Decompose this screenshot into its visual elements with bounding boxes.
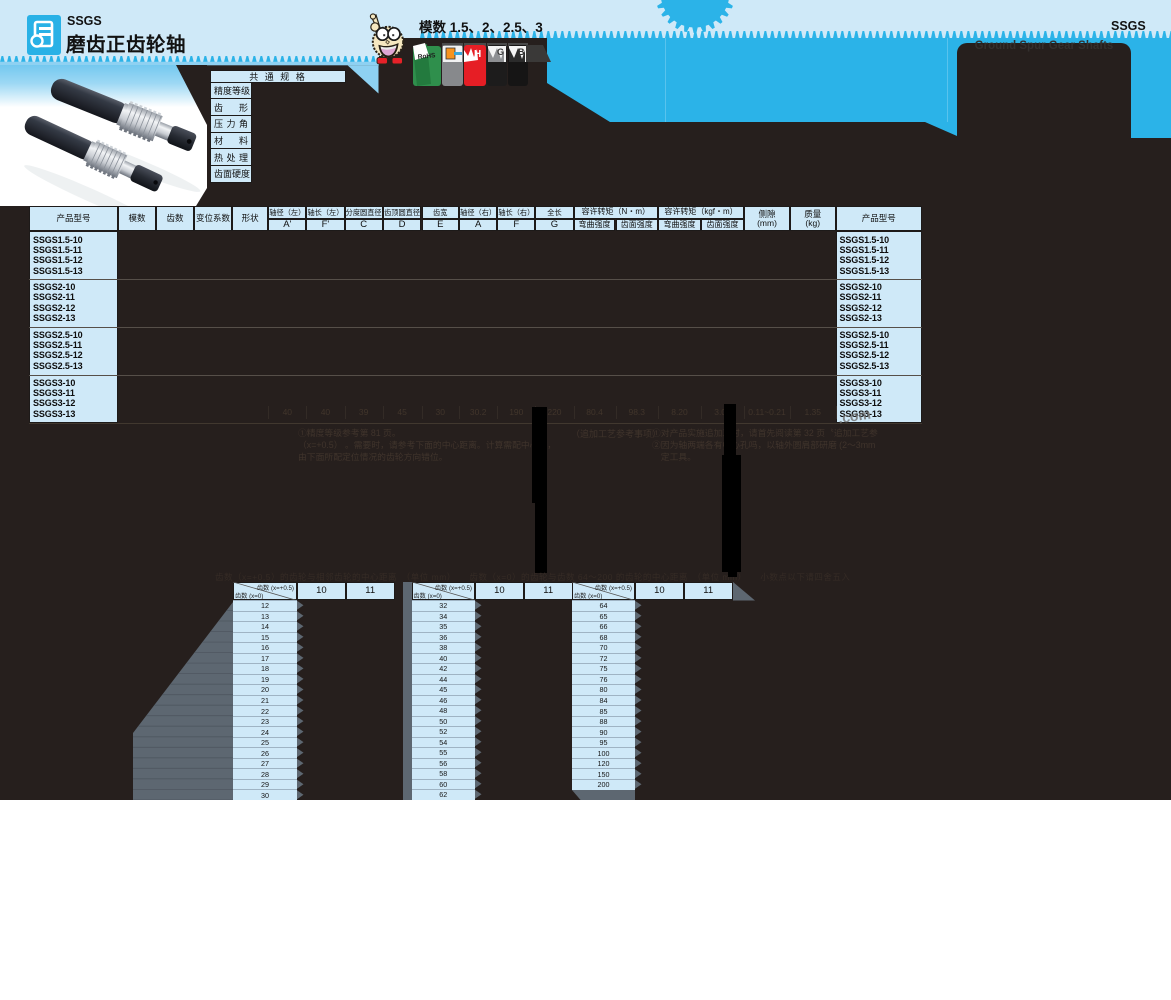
svg-text:B: B	[518, 47, 525, 57]
svg-text:H: H	[474, 49, 481, 60]
svg-text:G: G	[497, 47, 504, 57]
